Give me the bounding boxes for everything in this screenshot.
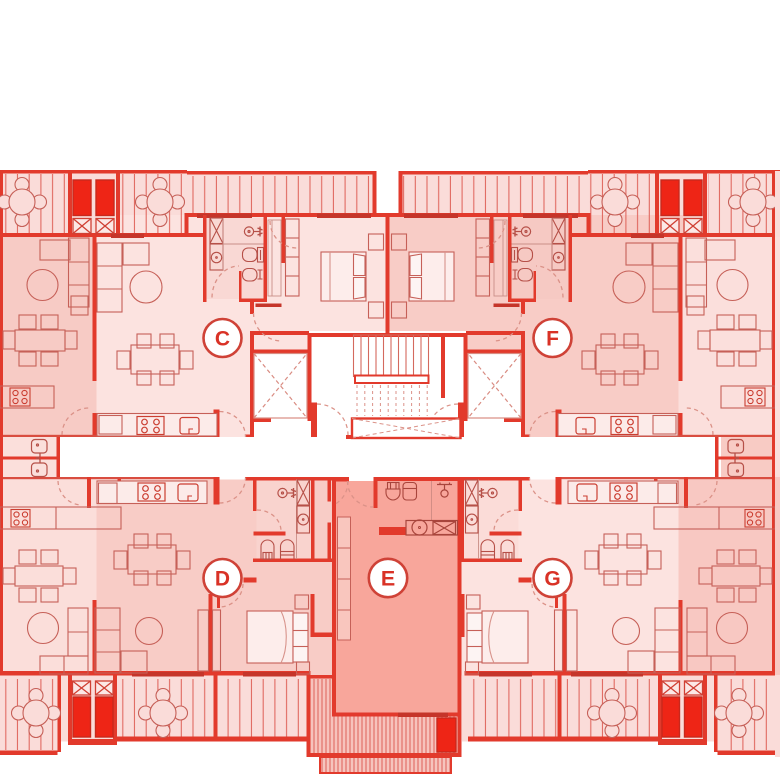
svg-text:F: F bbox=[546, 328, 559, 351]
svg-text:E: E bbox=[381, 567, 395, 591]
svg-text:G: G bbox=[544, 568, 560, 591]
svg-text:C: C bbox=[215, 328, 230, 351]
svg-text:D: D bbox=[215, 568, 230, 591]
